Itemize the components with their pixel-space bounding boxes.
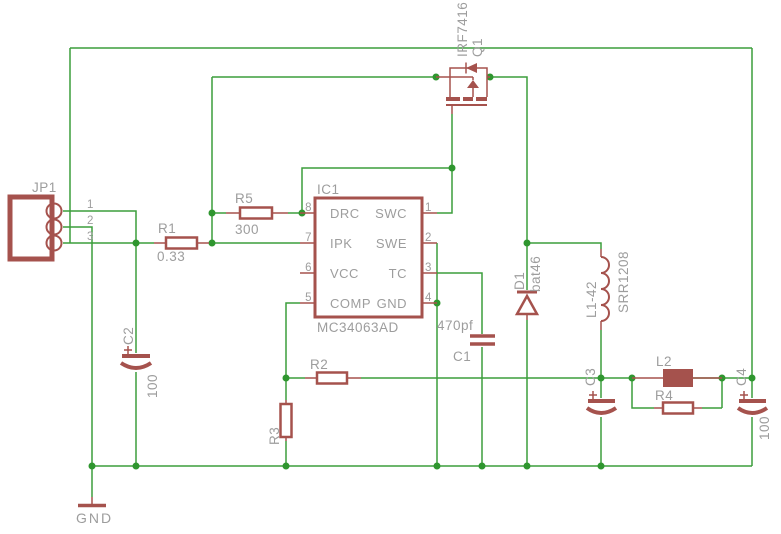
c3-plate-neg: [587, 408, 616, 413]
ic1-pin-label-drc: DRC: [330, 206, 360, 221]
junction-dot: [524, 463, 531, 470]
gnd-label: GND: [76, 510, 113, 526]
ic1-pin-label-swe: SWE: [376, 236, 407, 251]
r4-resistor: R4: [654, 388, 702, 414]
junction-dot: [283, 463, 290, 470]
c2-plus-icon: [124, 346, 132, 354]
r5-body: [240, 208, 272, 219]
q1-mosfet: IRF7416 Q1: [436, 2, 490, 114]
ic1-pin-number-7: 7: [305, 232, 312, 244]
gnd-symbol: GND: [76, 497, 113, 526]
junction-dot: [283, 375, 290, 382]
l2-body: [663, 369, 693, 387]
wire-q1-right-drop: [490, 77, 527, 243]
junction-dot: [133, 240, 140, 247]
junction-dot: [524, 240, 531, 247]
ic1-pin-number-4: 4: [425, 292, 432, 304]
ic1-pin-number-8: 8: [305, 202, 312, 214]
q1-body-diode-icon: [466, 63, 477, 73]
junction-dot: [89, 463, 96, 470]
junction-dot: [209, 240, 216, 247]
wire-gate-swc: [437, 114, 452, 213]
junction-dot: [133, 463, 140, 470]
c1-capacitor: 470pf C1: [437, 318, 495, 364]
schematic-canvas: JP1 1 2 3 IC1 MC34063AD DRC IPK VCC COMP…: [0, 0, 781, 534]
junction-dot: [598, 375, 605, 382]
q1-terminals: [436, 68, 490, 77]
r1-body: [166, 238, 197, 249]
c4-label: C4: [734, 368, 749, 386]
d1-triangle-icon: [517, 296, 537, 314]
r5-label: R5: [235, 191, 253, 206]
c3-label: C3: [583, 368, 598, 386]
q1-label: Q1: [470, 38, 485, 57]
r2-resistor: R2: [305, 357, 361, 384]
junction-dot: [209, 210, 216, 217]
c3-plus-icon: [589, 391, 597, 399]
jp1-pin-number-2: 2: [87, 215, 94, 227]
wire-jp1-pin2: [63, 227, 92, 466]
jp1-connector: JP1 1 2 3: [10, 180, 94, 259]
r2-body: [317, 373, 347, 384]
r2-label: R2: [310, 357, 328, 372]
c4-plate-neg: [738, 408, 767, 413]
r1-resistor: R1 0.33: [154, 221, 209, 264]
c1-value: 470pf: [437, 318, 473, 333]
wire-d1-l1: [527, 243, 601, 249]
ic1-pin-number-2: 2: [425, 232, 432, 244]
ic1-pin-number-3: 3: [425, 262, 432, 274]
ic1-pin-number-1: 1: [425, 202, 432, 214]
d1-diode: D1 bat46: [512, 256, 543, 320]
l1-inductor: L1-42 SRR1208: [584, 249, 631, 330]
ic1-pin-label-vcc: VCC: [330, 266, 359, 281]
r3-label: R3: [267, 427, 282, 445]
ic1-pin-stubs: [300, 213, 437, 303]
ic1-pin-number-5: 5: [305, 292, 312, 304]
ic1-pin-number-6: 6: [305, 262, 312, 274]
l2-inductor: L2: [632, 354, 722, 387]
r1-value: 0.33: [157, 249, 185, 264]
r3-body: [281, 404, 292, 437]
ic1-pin-label-gnd: GND: [377, 296, 407, 311]
ic1-regulator: IC1 MC34063AD DRC IPK VCC COMP SWC SWE T…: [300, 182, 437, 335]
c2-capacitor: C2 100: [121, 327, 160, 398]
net-wires: [63, 48, 752, 497]
ic1-value: MC34063AD: [317, 320, 399, 335]
r3-resistor: R3: [267, 400, 292, 445]
l2-label: L2: [656, 354, 672, 369]
r4-body: [663, 403, 693, 414]
junction-dot: [598, 463, 605, 470]
r1-label: R1: [158, 221, 176, 236]
ic1-pin-label-swc: SWC: [375, 206, 407, 221]
c4-value: 100: [757, 416, 772, 440]
wire-comp-down: [286, 303, 300, 378]
junction-dot: [479, 463, 486, 470]
jp1-pin-number-1: 1: [87, 199, 94, 211]
jp1-pin-number-3: 3: [87, 231, 94, 243]
l1-coil: [601, 257, 609, 321]
c2-label: C2: [121, 327, 136, 345]
r4-label: R4: [655, 388, 673, 403]
d1-value: bat46: [528, 256, 543, 292]
ic1-pin-label-comp: COMP: [330, 296, 371, 311]
c3-capacitor: C3: [583, 368, 616, 413]
q1-substrate-arrow-icon: [467, 80, 479, 88]
jp1-label: JP1: [32, 180, 57, 195]
d1-label: D1: [512, 272, 527, 290]
c1-label: C1: [453, 349, 471, 364]
schematic-svg: JP1 1 2 3 IC1 MC34063AD DRC IPK VCC COMP…: [0, 0, 781, 534]
c2-value: 100: [145, 374, 160, 398]
junction-dot: [434, 463, 441, 470]
r5-resistor: R5 300: [226, 191, 288, 237]
ic1-label: IC1: [317, 182, 340, 197]
l1-label: L1-42: [584, 281, 599, 318]
l1-value: SRR1208: [616, 251, 631, 313]
c4-plus-icon: [740, 391, 748, 399]
c2-plate-neg: [121, 363, 151, 368]
r5-value: 300: [235, 222, 259, 237]
q1-value: IRF7416: [455, 2, 470, 57]
c1-plates: [470, 336, 495, 344]
junction-dot: [749, 375, 756, 382]
junction-dot: [449, 165, 456, 172]
ic1-pin-label-ipk: IPK: [330, 236, 352, 251]
ic1-pin-label-tc: TC: [389, 266, 407, 281]
